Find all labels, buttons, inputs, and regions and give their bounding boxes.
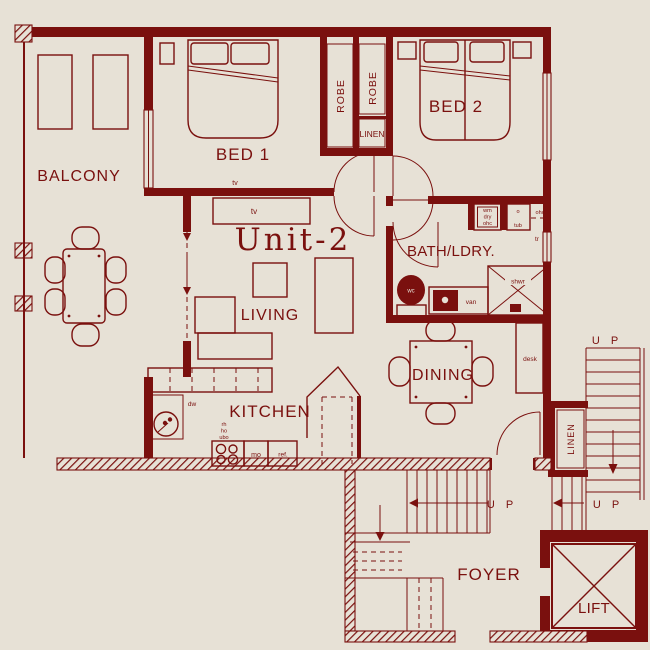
living-label: LIVING (241, 307, 299, 324)
up-label-flight: U P (592, 335, 622, 347)
bed2-label: BED 2 (429, 97, 483, 116)
kitchen-label: KITCHEN (229, 402, 311, 421)
microwave-label: mo (251, 452, 261, 459)
robe2-label: ROBE (367, 71, 379, 105)
rangehood-label: rh (222, 422, 227, 428)
vanity-label: van (466, 299, 477, 306)
lift-label: LIFT (578, 600, 610, 617)
unit-title: Unit-2 (235, 222, 352, 258)
underbench-oven-label: ubo (219, 435, 228, 441)
bath-laundry-label: BATH/LDRY. (407, 243, 495, 260)
window-bath-east (543, 232, 551, 262)
tv-point-label: tv (232, 180, 238, 187)
dining-label: DINING (412, 367, 474, 384)
shower-label: shwr (511, 279, 526, 286)
overhead-cupboard-label: ohc (483, 221, 492, 227)
dryer-label: dry (484, 215, 492, 221)
hotplate-label: ho (221, 429, 227, 435)
shower-head-icon (510, 304, 521, 312)
floorplan-unit-2: BALCONY BED 1 tv ROBE ROBE LINEN BED 2 (0, 0, 650, 650)
overhead-cupboard-label: ohc (535, 210, 544, 216)
dishwasher-label: dw (188, 401, 197, 408)
balcony-label: BALCONY (37, 168, 120, 185)
wc-label: wc (406, 289, 414, 295)
fridge-label: ref. (278, 452, 288, 459)
column-post (15, 25, 32, 42)
tub-tap-label: o (516, 209, 519, 215)
linen-hall-label: LINEN (360, 130, 385, 139)
window-bed1-west (144, 110, 153, 188)
bed1-label: BED 1 (216, 145, 270, 164)
window-bed2-east (543, 73, 551, 160)
laundry-tub-label: tub (514, 223, 522, 229)
desk-label: desk (523, 356, 537, 363)
up-label-landing: U P (593, 499, 623, 511)
tv-label: tv (251, 207, 257, 216)
up-label-foyer: U P (487, 499, 517, 511)
foyer-label: FOYER (457, 565, 521, 584)
robe1-label: ROBE (335, 79, 347, 113)
linen-foyer-label: LINEN (566, 423, 576, 455)
floorplan-drawing: BALCONY BED 1 tv ROBE ROBE LINEN BED 2 (0, 0, 650, 650)
washing-machine-label: wm (482, 208, 492, 214)
